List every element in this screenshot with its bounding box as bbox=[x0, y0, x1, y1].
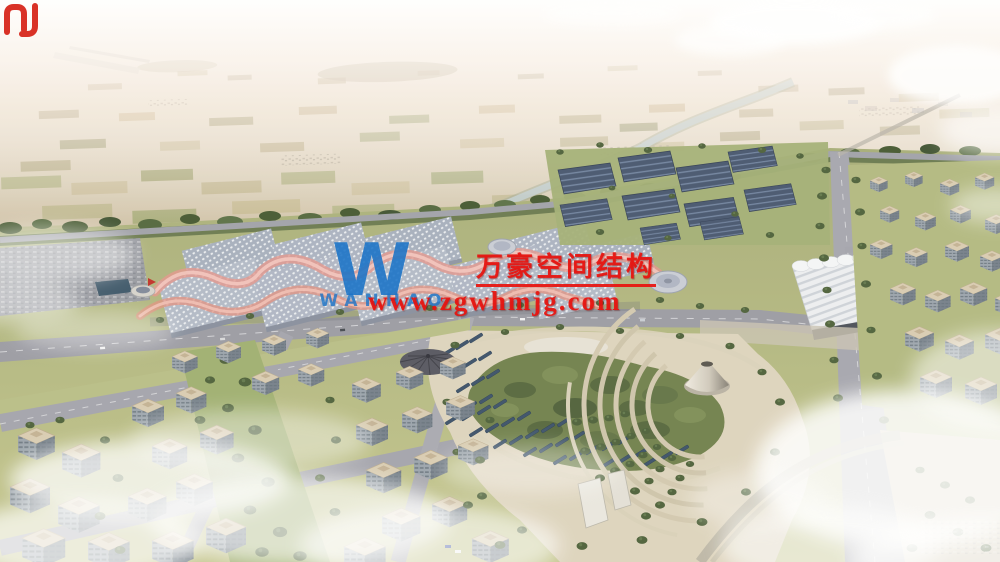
warm-tint bbox=[0, 0, 1000, 562]
scene-canvas bbox=[0, 0, 1000, 562]
aerial-rendering: W WANHAO 万豪空间结构 www.zgwhmjg.com bbox=[0, 0, 1000, 562]
